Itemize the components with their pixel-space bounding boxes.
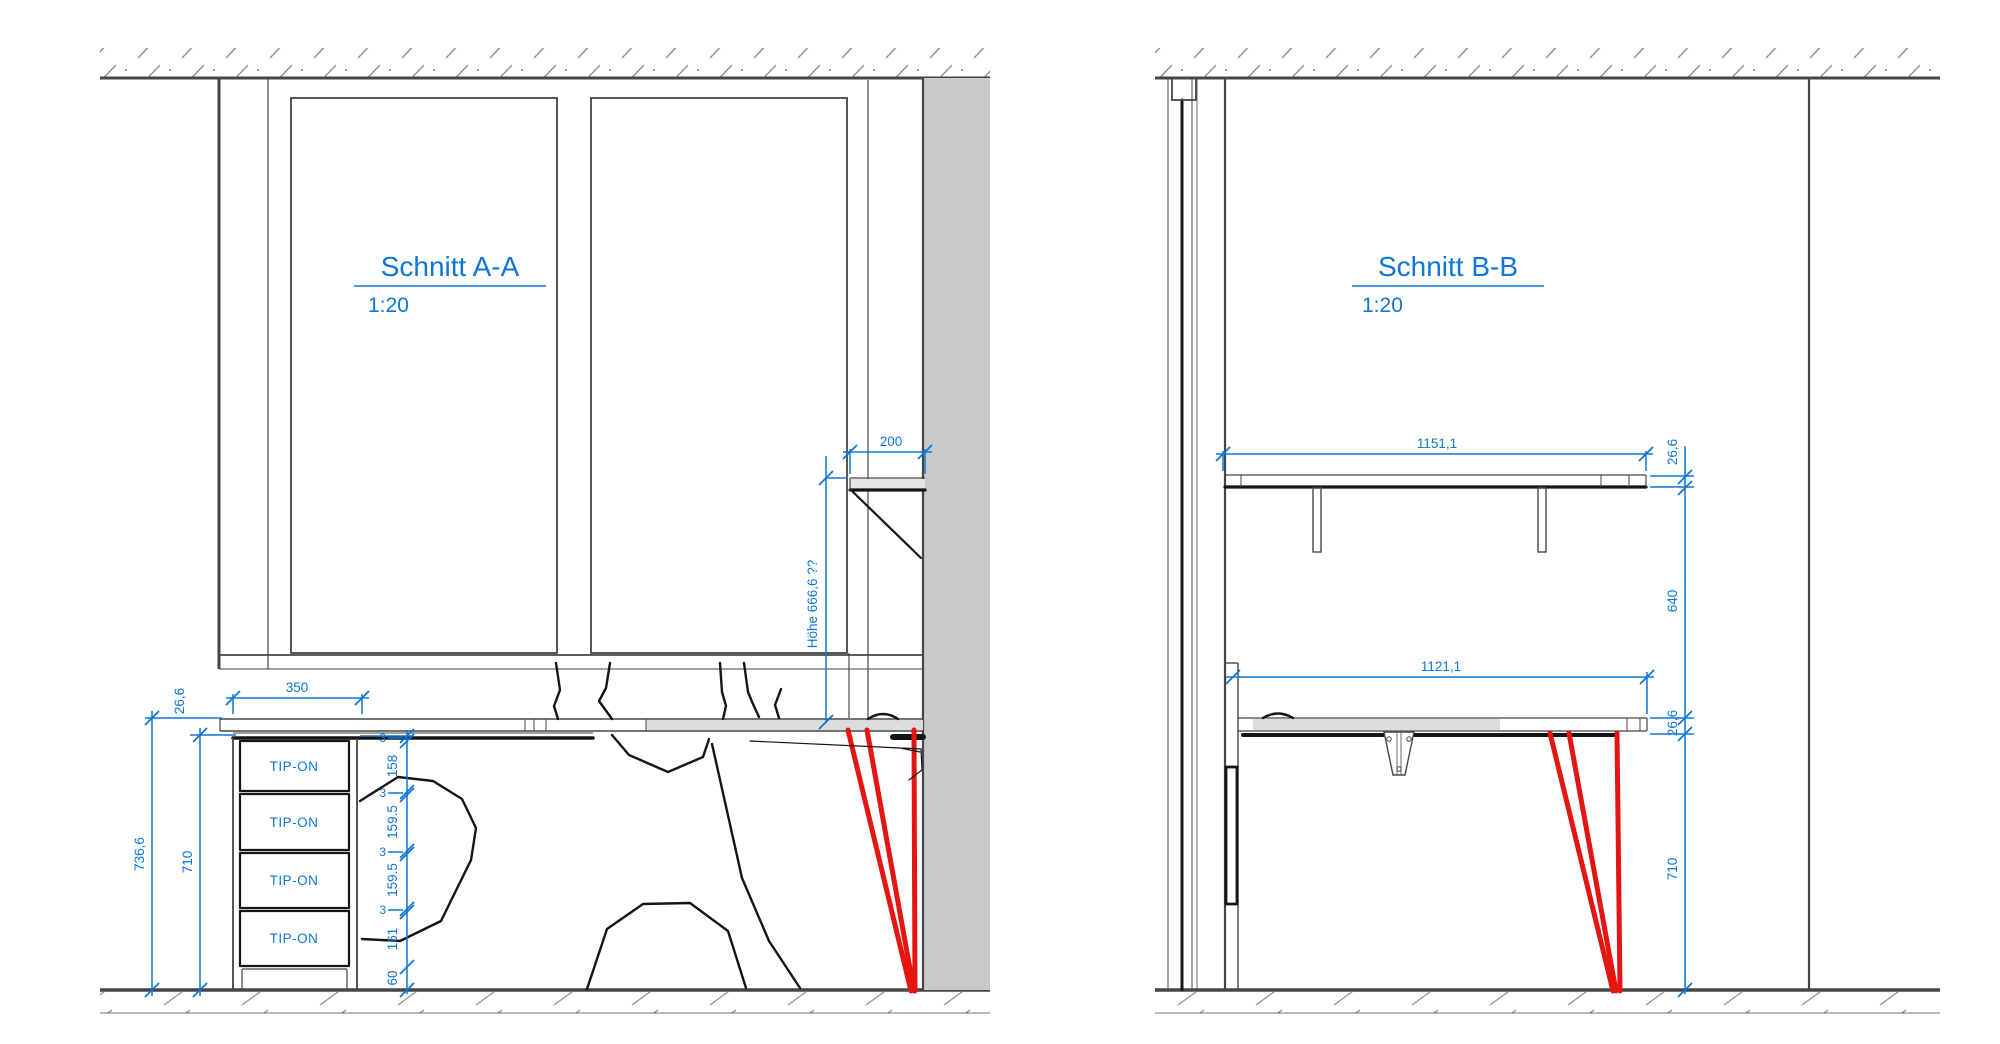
dim-desk-width: 1121,1: [1421, 659, 1461, 674]
floor-b: [1155, 990, 1940, 1013]
section-drawings: Schnitt A-A 1:20 TIP-ON TIP-ON: [0, 0, 2000, 1044]
floor-hatch-b: [1155, 992, 1940, 1013]
dim-shelf-clearance: 640: [1665, 590, 1680, 613]
cable-grommet-b: [1263, 714, 1293, 719]
ceiling-a: [100, 48, 990, 78]
dim-drawer-1: 158: [385, 755, 400, 778]
dim-plinth: 60: [385, 970, 400, 985]
left-wall-a: [219, 78, 268, 669]
dim-shelf-height-note: Höhe 666,6 ??: [805, 560, 820, 649]
section-a-scale: 1:20: [368, 294, 409, 317]
shelf-bracket-diagonal: [853, 492, 921, 558]
dim-top-thickness: 26,6: [172, 688, 187, 714]
section-b-view: Schnitt B-B 1:20: [1155, 48, 1940, 1013]
dim-gap-2: 3: [379, 786, 386, 800]
hairpin-legs-b: [1550, 733, 1620, 991]
dim-desk-thickness: 26,6: [1665, 710, 1680, 736]
dim-shelf-depth: 200: [880, 434, 903, 449]
drawer-label-3: TIP-ON: [270, 873, 319, 888]
section-b-scale: 1:20: [1362, 294, 1403, 317]
drawer-label-1: TIP-ON: [270, 759, 319, 774]
desk-b: [1238, 714, 1647, 776]
drawer-label-2: TIP-ON: [270, 815, 319, 830]
plinth: [242, 969, 347, 990]
section-b-title: Schnitt B-B: [1378, 251, 1518, 282]
wall-shelf-b: [1225, 475, 1646, 552]
ceiling-hatch-a: [100, 48, 990, 77]
desk-top-gray-b: [1253, 719, 1500, 730]
dim-gap-1: 3: [379, 731, 386, 745]
ceiling-hatch-b: [1155, 48, 1940, 77]
dim-desk-height: 710: [1665, 858, 1680, 881]
left-wall-b: [1168, 78, 1225, 990]
dim-drawer-2: 159.5: [385, 805, 400, 839]
cad-drawing-canvas: Schnitt A-A 1:20 TIP-ON TIP-ON: [0, 0, 2000, 1044]
title-block-b: Schnitt B-B 1:20: [1352, 251, 1544, 317]
drawer-label-4: TIP-ON: [270, 931, 319, 946]
shelf-bracket-1: [1313, 488, 1321, 552]
floor-a: [100, 990, 990, 1013]
desk-top-gray-a: [646, 720, 923, 730]
dim-shelf-thickness: 26,6: [1665, 439, 1680, 465]
shelf-bracket-2: [1538, 488, 1546, 552]
desk-mount-bracket: [1384, 732, 1414, 775]
dim-gap-3: 3: [379, 845, 386, 859]
ceiling-b: [1155, 48, 1940, 78]
wall-shelf-a: [850, 478, 925, 558]
dim-total-height: 736,6: [132, 837, 147, 871]
dim-shelf-width: 1151,1: [1417, 436, 1457, 451]
dimensions-a: 350 736,6 710 26,6 200 Höhe 666,6 ??: [132, 434, 932, 997]
dim-gap-4: 3: [379, 903, 386, 917]
cabinet-side-post: [1225, 663, 1238, 990]
dim-drawer-3: 159.5: [385, 863, 400, 897]
desk-a: [220, 719, 923, 738]
drawer-unit: TIP-ON TIP-ON TIP-ON TIP-ON: [233, 738, 357, 990]
dim-cabinet-width: 350: [286, 680, 309, 695]
side-wall-a: [923, 78, 990, 990]
hairpin-legs-a: [848, 730, 915, 991]
dim-drawer-4: 161: [385, 928, 400, 951]
dim-clear-height: 710: [180, 851, 195, 874]
section-a-title: Schnitt A-A: [381, 251, 520, 282]
curtain-outline: [360, 663, 922, 989]
floor-hatch-a: [100, 992, 990, 1013]
title-block-a: Schnitt A-A 1:20: [354, 251, 546, 317]
section-a-view: Schnitt A-A 1:20 TIP-ON TIP-ON: [100, 48, 990, 1013]
